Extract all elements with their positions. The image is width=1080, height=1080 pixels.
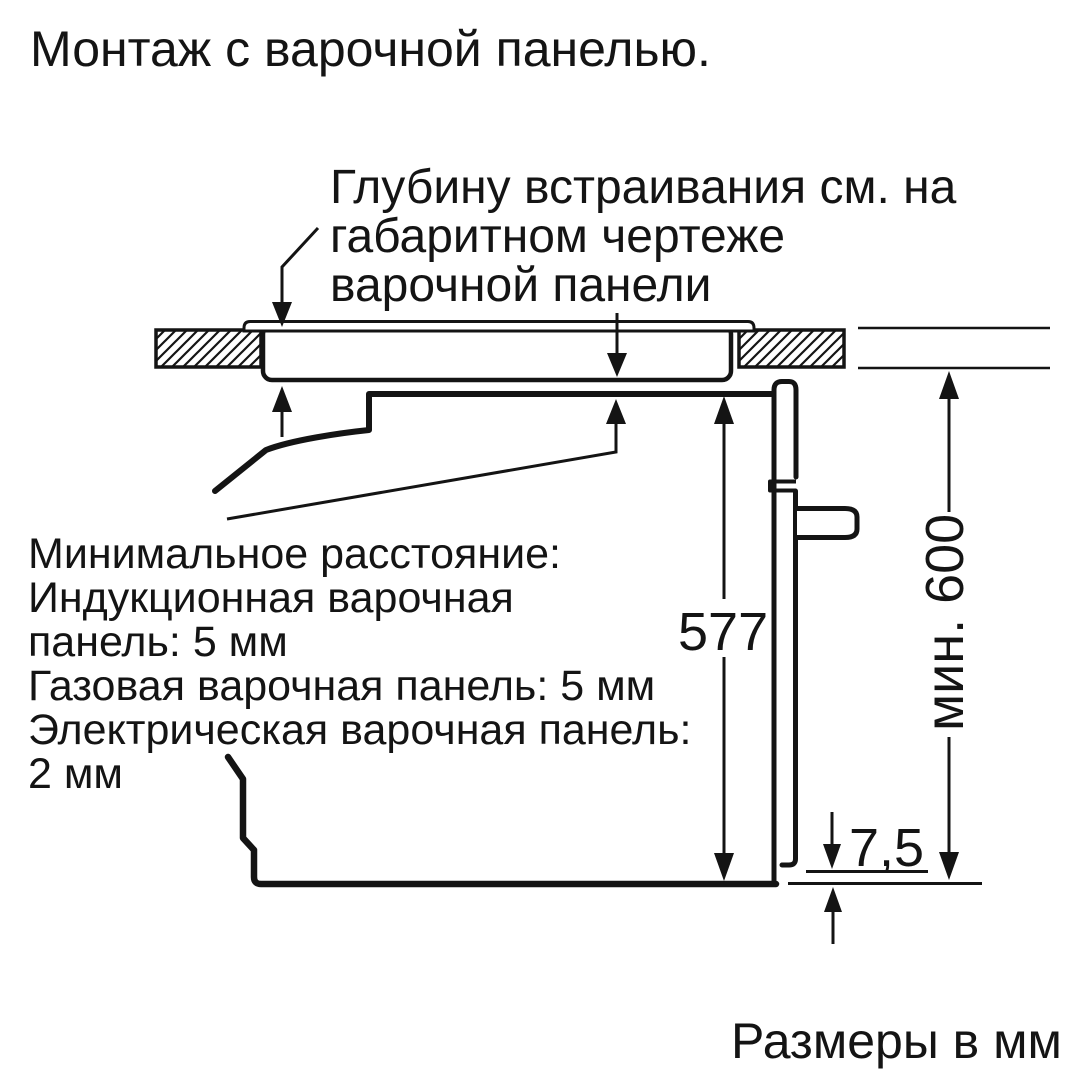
- dimension-577: 577: [678, 396, 768, 881]
- clearance-arrow-left: [272, 386, 292, 437]
- depth-note-line2: габаритном чертеже: [330, 210, 785, 263]
- depth-note-leader-arrow: [272, 228, 318, 327]
- dimension-577-label: 577: [678, 602, 768, 662]
- dimension-min-600-label: мин. 600: [915, 514, 975, 731]
- clearance-leader-arrow: [227, 399, 626, 519]
- oven-hinge-stub: [797, 509, 857, 538]
- oven-bottom-break-line: [228, 757, 776, 884]
- depth-note-line1: Глубину встраивания см. на: [330, 161, 957, 214]
- worktop-right-section: [739, 330, 844, 367]
- oven-top-break-line: [215, 394, 772, 491]
- dimension-7-5: 7,5: [823, 812, 924, 944]
- min-distance-line6: 2 мм: [28, 750, 123, 798]
- depth-note: Глубину встраивания см. на габаритном че…: [330, 161, 957, 312]
- min-distance-line4: Газовая варочная панель: 5 мм: [28, 662, 655, 710]
- dimension-7-5-label: 7,5: [849, 818, 924, 878]
- min-distance-line5: Электрическая варочная панель:: [28, 706, 691, 754]
- oven-front-face-line: [782, 491, 796, 865]
- oven-front-frame: [774, 382, 796, 884]
- min-distance-note: Минимальное расстояние: Индукционная вар…: [28, 530, 691, 798]
- oven-hob-installation-diagram: Монтаж с варочной панелью. Глубину встра…: [0, 0, 1080, 1080]
- min-distance-line3: панель: 5 мм: [28, 618, 288, 666]
- units-footer: Размеры в мм: [731, 1013, 1062, 1069]
- installation-diagram-page: Монтаж с варочной панелью. Глубину встра…: [0, 0, 1080, 1080]
- diagram-title: Монтаж с варочной панелью.: [30, 21, 711, 77]
- min-distance-line1: Минимальное расстояние:: [28, 530, 561, 578]
- hob-top-plate: [244, 322, 754, 332]
- dimension-min-600: мин. 600: [915, 371, 975, 880]
- min-distance-line2: Индукционная варочная: [28, 574, 514, 622]
- depth-note-line3: варочной панели: [330, 259, 711, 312]
- worktop-left-section: [156, 330, 261, 367]
- hob-body: [263, 325, 731, 380]
